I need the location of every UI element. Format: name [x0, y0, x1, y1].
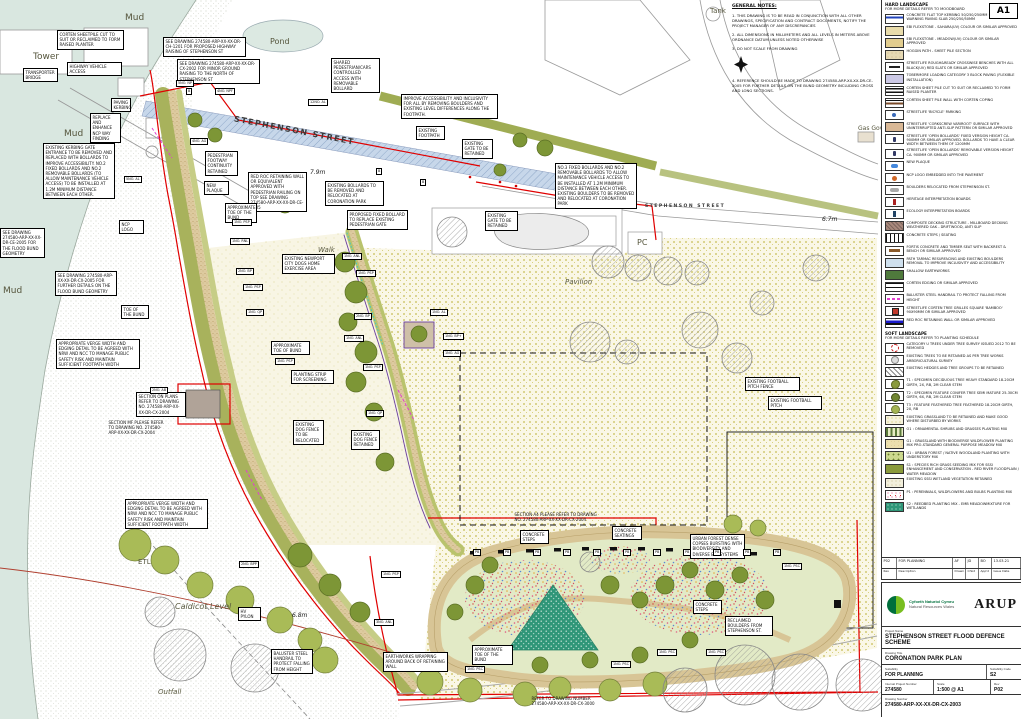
- legend-hard-items: CONCRETE FLAT TOP KERBING 50/250/250mm +…: [885, 13, 1019, 328]
- t3-swatch-icon: [885, 403, 904, 413]
- legend-item-label: P1 : PERENNIALS, WILDFLOWERS AND BULBS P…: [907, 490, 1013, 494]
- plant-tag: PB: [563, 549, 571, 556]
- hoggin-swatch-icon: [885, 50, 904, 60]
- map-label: Caldicot Level: [175, 602, 231, 611]
- bollard-fixed-swatch-icon: [885, 134, 904, 144]
- sssi-swatch-icon: [885, 478, 904, 488]
- o1-swatch-icon: [885, 427, 904, 437]
- legend-item: EBI FLEXSTONE - MEADOW(UV) COLOUR OR SIM…: [885, 37, 1019, 48]
- drawing-sheet: GENERAL NOTES: 1. THIS DRAWING IS TO BE …: [0, 0, 1021, 719]
- drawing-number-label: Drawing Number: [885, 697, 1018, 701]
- legend-item-label: T2 : SPECIMEN FEATURE CONIFER TREE SEMI …: [907, 391, 1020, 400]
- legend-item: STREETLIFE ROUGH&READY CROSSWISE BENCHES…: [885, 61, 1019, 72]
- annotation-box: NCP LOGO: [119, 220, 144, 234]
- plant-tag: 12NO. AL: [308, 99, 328, 106]
- plant-tag: PB: [473, 549, 481, 556]
- legend-item-label: STREETLIFE 'BICYCLE' PARKING: [907, 110, 961, 114]
- plant-tag: B: [420, 179, 426, 186]
- legend-item: SHALLOW EARTHWORKS: [885, 269, 1019, 280]
- redroc-swatch-icon: [885, 318, 904, 328]
- drawing-title: CORONATION PARK PLAN: [885, 656, 1018, 662]
- drawing-title-label: Drawing Title: [885, 651, 1018, 655]
- scale-value: 1:500 @ A1: [937, 687, 987, 693]
- map-label: STEPHENSON STREET: [645, 204, 725, 209]
- legend-item: T3 : FEATURE FEATHERED TREE FEATHERED 18…: [885, 403, 1019, 414]
- plant-tag: 1NO. PSC: [657, 649, 677, 656]
- p1-swatch-icon: [885, 490, 904, 500]
- rev-label: Rev: [994, 682, 1018, 686]
- ecology-swatch-icon: [885, 209, 904, 219]
- plant-tag: 1NO. PSP: [356, 270, 376, 277]
- legend-item: ECOLOGY INTERPRETATION BOARDS: [885, 209, 1019, 220]
- suitability-code-value: S2: [990, 672, 1018, 678]
- legend-item: CORTEN EDGING OR SIMILAR APPROVED: [885, 281, 1019, 292]
- legend-item: U1 : URBAN FOREST / NATIVE WOODLAND PLAN…: [885, 451, 1019, 462]
- annotation-box: APPROPRIATE VERGE WIDTH AND EDGING DETAI…: [56, 339, 140, 369]
- exist-tree-swatch-icon: [885, 355, 904, 365]
- north-arrow-icon: [734, 56, 748, 73]
- general-notes-title: GENERAL NOTES:: [732, 4, 880, 10]
- project-number-value: 274580: [885, 687, 930, 693]
- annotation-box: REFER TO DRAWING NUMBER 274580-ARP-XX-XX…: [530, 695, 599, 707]
- legend-item: RED ROC RETAINING WALL OR SIMILAR APPROV…: [885, 318, 1019, 329]
- legend-item: S2 : REEDBED PLANTING MIX - EMB MEADOWMI…: [885, 502, 1019, 513]
- plant-tag: B: [186, 88, 192, 95]
- annotation-box: SECTION A4 PLEASE REFER TO DRAWING NO. 2…: [513, 511, 600, 523]
- plant-tag: 5NO. NP: [176, 80, 194, 87]
- cat-u-swatch-icon: [885, 343, 904, 353]
- annotation-box: SECTION MF PLEASE REFER TO DRAWING NO. 2…: [107, 419, 166, 437]
- annotation-box: HIGHWAY VEHICLE ACCESS: [67, 62, 122, 76]
- legend-item-label: T1 : SPECIMEN DECIDUOUS TREE HEAVY STAND…: [907, 378, 1020, 387]
- plant-tag: 1NO. PSP: [363, 364, 383, 371]
- legend-item: NCP LOGO EMBEDDED INTO THE PAVEMENT: [885, 173, 1019, 184]
- plant-tag: PB: [533, 549, 541, 556]
- annotation-box: CONCRETE SEATINGS: [612, 526, 642, 540]
- plant-tag: 1NO. PSC: [706, 649, 726, 656]
- legend-item-label: COMPOSITE DECKING STRUCTURE - MILLBOARD …: [907, 221, 1020, 230]
- decking-swatch-icon: [885, 221, 904, 231]
- legend-item-label: CORTEN SHEET PILE WALL WITH CORTEN COPIN…: [907, 98, 994, 102]
- steps-swatch-icon: [885, 233, 904, 243]
- map-label: Outfall: [158, 688, 181, 696]
- annotation-box: CONCRETE STEPS: [520, 530, 549, 544]
- map-label: Pond: [270, 37, 290, 46]
- legend-item: STREETLIFE 'BICYCLE' PARKING: [885, 110, 1019, 121]
- bollard-removable-swatch-icon: [885, 149, 904, 159]
- rev-header-cell: Chkd: [966, 569, 979, 579]
- plant-tag: PB: [623, 549, 631, 556]
- legend-item: CATEGORY U TREES UNDER TREE SURVEY ISSUE…: [885, 342, 1019, 353]
- legend-item: T1 : SPECIMEN DECIDUOUS TREE HEAVY STAND…: [885, 378, 1019, 389]
- annotation-box: EXISTING KERBING GATE ENTRANCE TO BE REM…: [43, 143, 115, 199]
- project-number-label: Internal Project Number: [885, 682, 930, 686]
- legend-panel: HARD LANDSCAPE FOR MORE DETAILS REFER TO…: [881, 0, 1021, 557]
- sahara-swatch-icon: [885, 26, 904, 36]
- annotation-box: PLANTING STRIP FOR SCREENING: [291, 370, 334, 384]
- annotation-box: APPROPRIATE VERGE WIDTH AND EDGING DETAI…: [125, 499, 208, 529]
- legend-item-label: CATEGORY U TREES UNDER TREE SURVEY ISSUE…: [907, 342, 1020, 351]
- annotation-box: IMPROVE ACCESSIBILITY AND INCLUSIVITY FO…: [401, 94, 498, 119]
- annotation-box: EXISTING NEWPORT CITY DOGS HOME EXERCISE…: [282, 254, 335, 274]
- legend-item-label: U1 : URBAN FOREST / NATIVE WOODLAND PLAN…: [907, 451, 1020, 460]
- legend-item-label: BOULDERS RELOCATED FROM STEPHENSON ST.: [907, 185, 990, 189]
- legend-item: PATH TARMAC RESURFACING AND EXISTING BOU…: [885, 257, 1019, 268]
- legend-item-label: T3 : FEATURE FEATHERED TREE FEATHERED 18…: [907, 403, 1020, 412]
- annotation-box: EXISTING FOOTBALL PITCH: [768, 396, 822, 410]
- legend-item: STREETLIFE 'CORKSCREW VARIROOT' SURFACE …: [885, 122, 1019, 133]
- corten-edge-swatch-icon: [885, 282, 904, 292]
- annotation-box: EXISTING DOG FENCE RETAINED: [351, 430, 380, 450]
- revision-row: P02FOR PLANNINGAFJDBO13.03.21: [882, 558, 1021, 569]
- legend-item-label: NEW PLAQUE: [907, 160, 930, 164]
- bike-swatch-icon: [885, 110, 904, 120]
- annotation-box: EXISTING FOOTBALL PITCH FENCE: [745, 377, 800, 391]
- annotation-box: PAVING KERBING: [111, 98, 131, 112]
- legend-item-label: NCP LOGO EMBEDDED INTO THE PAVEMENT: [907, 173, 984, 177]
- legend-item-label: STREETLIFE 'OPEN BOLLARDS' REMOVABLE VER…: [907, 148, 1020, 157]
- plant-tag: 1NO. QP: [246, 309, 264, 316]
- rev-cell: FOR PLANNING: [897, 558, 953, 568]
- suitability-value: FOR PLANNING: [885, 672, 983, 678]
- plant-tag: 1NO. AG: [443, 350, 461, 357]
- plant-tag: PB: [683, 549, 691, 556]
- legend-item-label: BALUSTER STEEL HANDRAIL TO PROTECT FALLI…: [907, 293, 1020, 302]
- plant-tag: 2NO. BPP: [239, 561, 259, 568]
- map-label: Gas Gov: [858, 125, 883, 132]
- plant-tag: 1NO. PSC: [611, 661, 631, 668]
- annotation-box: EXISTING GATE TO BE RETAINED: [485, 211, 518, 231]
- annotation-box: EARTHWORKS WRAPPING AROUND BACK OF RETAI…: [383, 652, 448, 672]
- plant-tag: PB: [713, 549, 721, 556]
- legend-soft-subtitle: FOR MORE DETAILS REFER TO PLANTING SCHED…: [885, 336, 1019, 340]
- legend-item: COMPOSITE DECKING STRUCTURE - MILLBOARD …: [885, 221, 1019, 232]
- revision-header-row: RevDescriptionDrawnChkdApp'dIssue Date: [882, 569, 1021, 580]
- annotation-box: RECLAIMED BOULDERS FROM STEPHENSON ST.: [725, 616, 773, 636]
- plant-tag: PB: [773, 549, 781, 556]
- s1-swatch-icon: [885, 464, 904, 474]
- hedges-swatch-icon: [885, 367, 904, 377]
- annotation-box: APPROXIMATE TOE OF BUND: [271, 341, 310, 355]
- scale-label: Scale: [937, 682, 987, 686]
- map-label: Mud: [3, 286, 22, 296]
- rev-header-cell: Drawn: [953, 569, 966, 579]
- legend-item-label: EXISTING SSSI WETLAND VEGETATION RETAINE…: [907, 477, 993, 481]
- drawing-number-value: 274580-ARP-XX-XX-DR-CX-2003: [885, 702, 1018, 708]
- legend-item-label: EXISTING TREES TO BE RETAINED AS PER TRE…: [907, 354, 1020, 363]
- legend-item: CORTEN SHEET PILE CUT TO SUIT OR RECLAIM…: [885, 86, 1019, 97]
- rev-value: P02: [994, 687, 1018, 693]
- plant-tag: 1NO. PSC: [465, 666, 485, 673]
- g1-swatch-icon: [885, 439, 904, 449]
- client-logo: Cyfoeth Naturiol Cymru Natural Resources…: [886, 595, 954, 615]
- handrail-swatch-icon: [885, 294, 904, 304]
- plant-tag: 1NO. AL: [430, 309, 448, 316]
- annotation-box: SEE DRAWING 274580-ARP-XX-XX-DR-CX-2005 …: [55, 271, 117, 296]
- legend-item: S1 : SPECIES RICH GRASS SEEDING MIX FOR …: [885, 463, 1019, 476]
- sheet-size-badge: A1: [989, 3, 1018, 19]
- annotation-box: NEW PLAQUE: [204, 181, 229, 195]
- legend-item: EBI FLEXSTONE - SAHARA(UV) COLOUR OR SIM…: [885, 25, 1019, 36]
- suitability-label: Suitability: [885, 667, 983, 671]
- plant-tag: B: [376, 168, 382, 175]
- plant-tag: 1NO. PSP: [381, 571, 401, 578]
- legend-item: CORTEN SHEET PILE WALL WITH CORTEN COPIN…: [885, 98, 1019, 109]
- rev-header-cell: App'd: [979, 569, 992, 579]
- legend-item-label: CORTEN EDGING OR SIMILAR APPROVED: [907, 281, 978, 285]
- fortis-swatch-icon: [885, 246, 904, 256]
- plant-tag: PB: [593, 549, 601, 556]
- consultant-logo: ARUP: [974, 597, 1017, 613]
- map-label: Mud: [64, 129, 83, 139]
- legend-item-label: CONCRETE STEPS / SEATING: [907, 233, 957, 237]
- plant-tag: PB: [743, 549, 751, 556]
- plant-tag: 2NO. BP: [354, 313, 372, 320]
- annotation-box: EXISTING DOG FENCE TO BE RELOCATED: [293, 420, 324, 445]
- legend-item: EXISTING TREES TO BE RETAINED AS PER TRE…: [885, 354, 1019, 365]
- plant-tag: 1NO. PSC: [782, 563, 802, 570]
- s2-swatch-icon: [885, 502, 904, 512]
- rev-cell: 13.03.21: [992, 558, 1021, 568]
- map-label: Mud: [125, 13, 144, 23]
- legend-item: BOULDERS RELOCATED FROM STEPHENSON ST.: [885, 185, 1019, 196]
- title-block: Cyfoeth Naturiol Cymru Natural Resources…: [881, 582, 1021, 717]
- plant-tag: 1NO. RNL: [230, 238, 250, 245]
- annotation-box: EXISTING FOOTPATH: [416, 126, 445, 140]
- plant-tag: 4NO. NPF: [215, 88, 235, 95]
- annotation-box: TOE OF THE BUND: [121, 305, 149, 319]
- legend-item: O1 : ORNAMENTAL SHRUBS AND GRASSES PLANT…: [885, 427, 1019, 438]
- heritage-swatch-icon: [885, 197, 904, 207]
- rev-cell: AF: [953, 558, 966, 568]
- legend-item-label: S2 : REEDBED PLANTING MIX - EMB MEADOWMI…: [907, 502, 1020, 511]
- pond: [243, 20, 323, 52]
- suitability-code-label: Suitability Code: [990, 667, 1018, 671]
- legend-item-label: TOBERMORE LOADING CATEGORY 3 BLOCK PAVIN…: [907, 73, 1020, 82]
- note-item: 4. REFERENCE SHOULD BE MADE TO DRAWING 2…: [732, 78, 880, 93]
- varicoot-swatch-icon: [885, 122, 904, 132]
- legend-item: P1 : PERENNIALS, WILDFLOWERS AND BULBS P…: [885, 490, 1019, 501]
- annotation-box: SECTION ON PLANS REFER TO DRAWING NO. 27…: [136, 392, 186, 417]
- legend-item: T2 : SPECIMEN FEATURE CONIFER TREE SEMI …: [885, 391, 1019, 402]
- plant-tag: 2NO. AB: [150, 387, 168, 394]
- boulders-swatch-icon: [885, 185, 904, 195]
- u1-swatch-icon: [885, 451, 904, 461]
- legend-item-label: HOGGIN PATH - SHEET PILE SECTION: [907, 49, 971, 53]
- plant-tag: PB: [503, 549, 511, 556]
- rev-cell: BO: [979, 558, 992, 568]
- legend-item-label: STREETLIFE 'CORKSCREW VARIROOT' SURFACE …: [907, 122, 1020, 131]
- rev-header-cell: Rev: [882, 569, 897, 579]
- rev-cell: JD: [966, 558, 979, 568]
- legend-item-label: G1 : GRASSLAND WITH BIODIVERSE WILDFLOWE…: [907, 439, 1020, 448]
- legend-item-label: EBI FLEXSTONE - MEADOW(UV) COLOUR OR SIM…: [907, 37, 1020, 46]
- earthworks-swatch-icon: [885, 270, 904, 280]
- plant-tag: 1NO. ANL: [344, 335, 364, 342]
- annotation-box: NO.3 FIXED BOLLARDS AND NO.2 REMOVABLE B…: [555, 163, 637, 209]
- legend-item: FORTIS CONCRETE AND TIMBER SEAT WITH BAC…: [885, 245, 1019, 256]
- annotation-box: BALUSTER STEEL HANDRAIL TO PROTECT FALLI…: [271, 649, 313, 674]
- legend-item-label: FORTIS CONCRETE AND TIMBER SEAT WITH BAC…: [907, 245, 1020, 254]
- legend-item: STREETLIFE 'OPEN BOLLARDS' REMOVABLE VER…: [885, 148, 1019, 159]
- legend-item-label: EXISTING HEDGES AND TREE GROUPS TO BE RE…: [907, 366, 1004, 370]
- annotation-box: EXISTING GATE TO BE RETAINED: [462, 139, 493, 159]
- client-name-english: Natural Resources Wales: [909, 604, 954, 609]
- map-label: 6.8m: [292, 612, 307, 619]
- note-item: 3. DO NOT SCALE FROM DRAWING: [732, 46, 880, 51]
- tree-grille-swatch-icon: [885, 306, 904, 316]
- plant-tag: 1NO. BP+: [443, 333, 464, 340]
- corten-wall-swatch-icon: [885, 98, 904, 108]
- legend-item: TOBERMORE LOADING CATEGORY 3 BLOCK PAVIN…: [885, 73, 1019, 84]
- revision-table: P02FOR PLANNINGAFJDBO13.03.21 RevDescrip…: [881, 557, 1021, 580]
- ncp-swatch-icon: [885, 173, 904, 183]
- legend-item-label: O1 : ORNAMENTAL SHRUBS AND GRASSES PLANT…: [907, 427, 1008, 431]
- map-label: Tower: [33, 52, 59, 62]
- map-label: 7.9m: [310, 169, 325, 176]
- map-label: ETL: [138, 558, 151, 566]
- note-item: 2. ALL DIMENSIONS IN MILLIMETERS AND ALL…: [732, 32, 880, 42]
- plant-tag: 1NO. QP: [366, 410, 384, 417]
- annotation-box: REPLACE AND ENHANCE NCP WAY FINDING: [90, 113, 121, 143]
- plant-tag: 1NO. PSP: [275, 358, 295, 365]
- plant-tag: 1NO. ANL: [342, 253, 362, 260]
- annotation-box: APPROXIMATE TOE OF THE BUND: [472, 645, 513, 665]
- legend-item: BALUSTER STEEL HANDRAIL TO PROTECT FALLI…: [885, 293, 1019, 304]
- note-item: 1. THIS DRAWING IS TO BE READ IN CONJUNC…: [732, 13, 880, 28]
- legend-soft-items: CATEGORY U TREES UNDER TREE SURVEY ISSUE…: [885, 342, 1019, 512]
- legend-item-label: SHALLOW EARTHWORKS: [907, 269, 950, 273]
- general-notes-list-cont: 4. REFERENCE SHOULD BE MADE TO DRAWING 2…: [732, 78, 880, 93]
- plant-tag: 1NO. PSP: [243, 284, 263, 291]
- legend-item: STREETLIFE CORTEN TREE GRILLES SQUARE 'B…: [885, 306, 1019, 317]
- map-label: 6.7m: [822, 216, 837, 223]
- legend-item: EXISTING GRASSLAND TO BE RETAINED AND MA…: [885, 415, 1019, 426]
- corten-cut-swatch-icon: [885, 86, 904, 96]
- legend-item-label: HERITAGE INTERPRETATION BOARDS: [907, 197, 971, 201]
- legend-item: HERITAGE INTERPRETATION BOARDS: [885, 197, 1019, 208]
- general-notes-panel: GENERAL NOTES: 1. THIS DRAWING IS TO BE …: [732, 4, 880, 96]
- legend-item: EXISTING HEDGES AND TREE GROUPS TO BE RE…: [885, 366, 1019, 377]
- legend-item: STREETLIFE 'OPEN BOLLARDS' FIXED VERSION…: [885, 134, 1019, 147]
- project-name: STEPHENSON STREET FLOOD DEFENCE SCHEME: [885, 634, 1018, 646]
- legend-item: G1 : GRASSLAND WITH BIODIVERSE WILDFLOWE…: [885, 439, 1019, 450]
- legend-item-label: STREETLIFE ROUGH&READY CROSSWISE BENCHES…: [907, 61, 1020, 70]
- annotation-box: TRANSPORTER BRIDGE: [23, 68, 58, 82]
- annotation-box: CONCRETE STEPS: [693, 600, 722, 614]
- legend-item-label: EBI FLEXSTONE - SAHARA(UV) COLOUR OR SIM…: [907, 25, 1017, 29]
- tarmac-swatch-icon: [885, 258, 904, 268]
- legend-item-label: RED ROC RETAINING WALL OR SIMILAR APPROV…: [907, 318, 996, 322]
- annotation-box: EXISTING BOLLARDS TO BE REMOVED AND RELO…: [325, 181, 384, 206]
- legend-item: NEW PLAQUE: [885, 160, 1019, 171]
- grass-exist-swatch-icon: [885, 415, 904, 425]
- legend-item-label: S1 : SPECIES RICH GRASS SEEDING MIX FOR …: [907, 463, 1020, 476]
- plant-tag: 2NO. BP: [236, 268, 254, 275]
- legend-item-label: PATH TARMAC RESURFACING AND EXISTING BOU…: [907, 257, 1020, 266]
- t2-swatch-icon: [885, 391, 904, 401]
- annotation-box: PROPOSED FIXED BOLLARD TO REPLACE EXISTI…: [347, 210, 408, 230]
- nrw-logo-icon: [886, 595, 906, 615]
- map-label: Pavilion: [565, 278, 592, 286]
- plaque-swatch-icon: [885, 161, 904, 171]
- legend-item-label: CORTEN SHEET PILE CUT TO SUIT OR RECLAIM…: [907, 86, 1020, 95]
- legend-item-label: STREETLIFE CORTEN TREE GRILLES SQUARE 'B…: [907, 306, 1020, 315]
- meadow-swatch-icon: [885, 38, 904, 48]
- legend-item: HOGGIN PATH - SHEET PILE SECTION: [885, 49, 1019, 60]
- kerb-swatch-icon: [885, 14, 904, 24]
- t1-swatch-icon: [885, 379, 904, 389]
- plant-tag: 4NO. AG: [190, 138, 208, 145]
- legend-item-label: STREETLIFE 'OPEN BOLLARDS' FIXED VERSION…: [907, 134, 1020, 147]
- rev-header-cell: Description: [897, 569, 953, 579]
- map-label: PC: [637, 238, 647, 247]
- general-notes-list: 1. THIS DRAWING IS TO BE READ IN CONJUNC…: [732, 13, 880, 51]
- map-label: Walk: [318, 246, 335, 254]
- annotation-box: HV PYLON: [238, 607, 261, 621]
- annotation-box: SEE DRAWING 274580-ARP-XX-XX-DR-CE-2005 …: [0, 228, 45, 258]
- plant-tag: PB: [653, 549, 661, 556]
- plant-tag: 1NO. PSP: [232, 219, 252, 226]
- rev-cell: P02: [882, 558, 897, 568]
- legend-item-label: ECOLOGY INTERPRETATION BOARDS: [907, 209, 970, 213]
- block-paving-swatch-icon: [885, 74, 904, 84]
- legend-item-label: EXISTING GRASSLAND TO BE RETAINED AND MA…: [907, 415, 1020, 424]
- map-label: Tank: [710, 7, 726, 15]
- plant-tag: 5NO. AL: [124, 176, 142, 183]
- plant-tag: 3NO. ANL: [374, 619, 394, 626]
- annotation-box: SEE DRAWING 274580-ARP-XX-XX-DR-CH-1201 …: [163, 37, 246, 57]
- project-name-label: Project Name: [885, 629, 1018, 633]
- bench-swatch-icon: [885, 62, 904, 72]
- annotation-box: PEDESTRIAN FOOTWAY CONTINUITY RETAINED: [205, 151, 238, 176]
- rev-header-cell: Issue Date: [992, 569, 1021, 579]
- annotation-box: CORTEN SHEETPILE CUT TO SUIT OR RECLAIME…: [57, 30, 124, 50]
- legend-item: EXISTING SSSI WETLAND VEGETATION RETAINE…: [885, 477, 1019, 488]
- site-plan-canvas: [0, 0, 1021, 719]
- legend-item: CONCRETE STEPS / SEATING: [885, 233, 1019, 244]
- annotation-box: SHARED PEDESTRIAN/CARS CONTROLLED ACCESS…: [331, 58, 380, 93]
